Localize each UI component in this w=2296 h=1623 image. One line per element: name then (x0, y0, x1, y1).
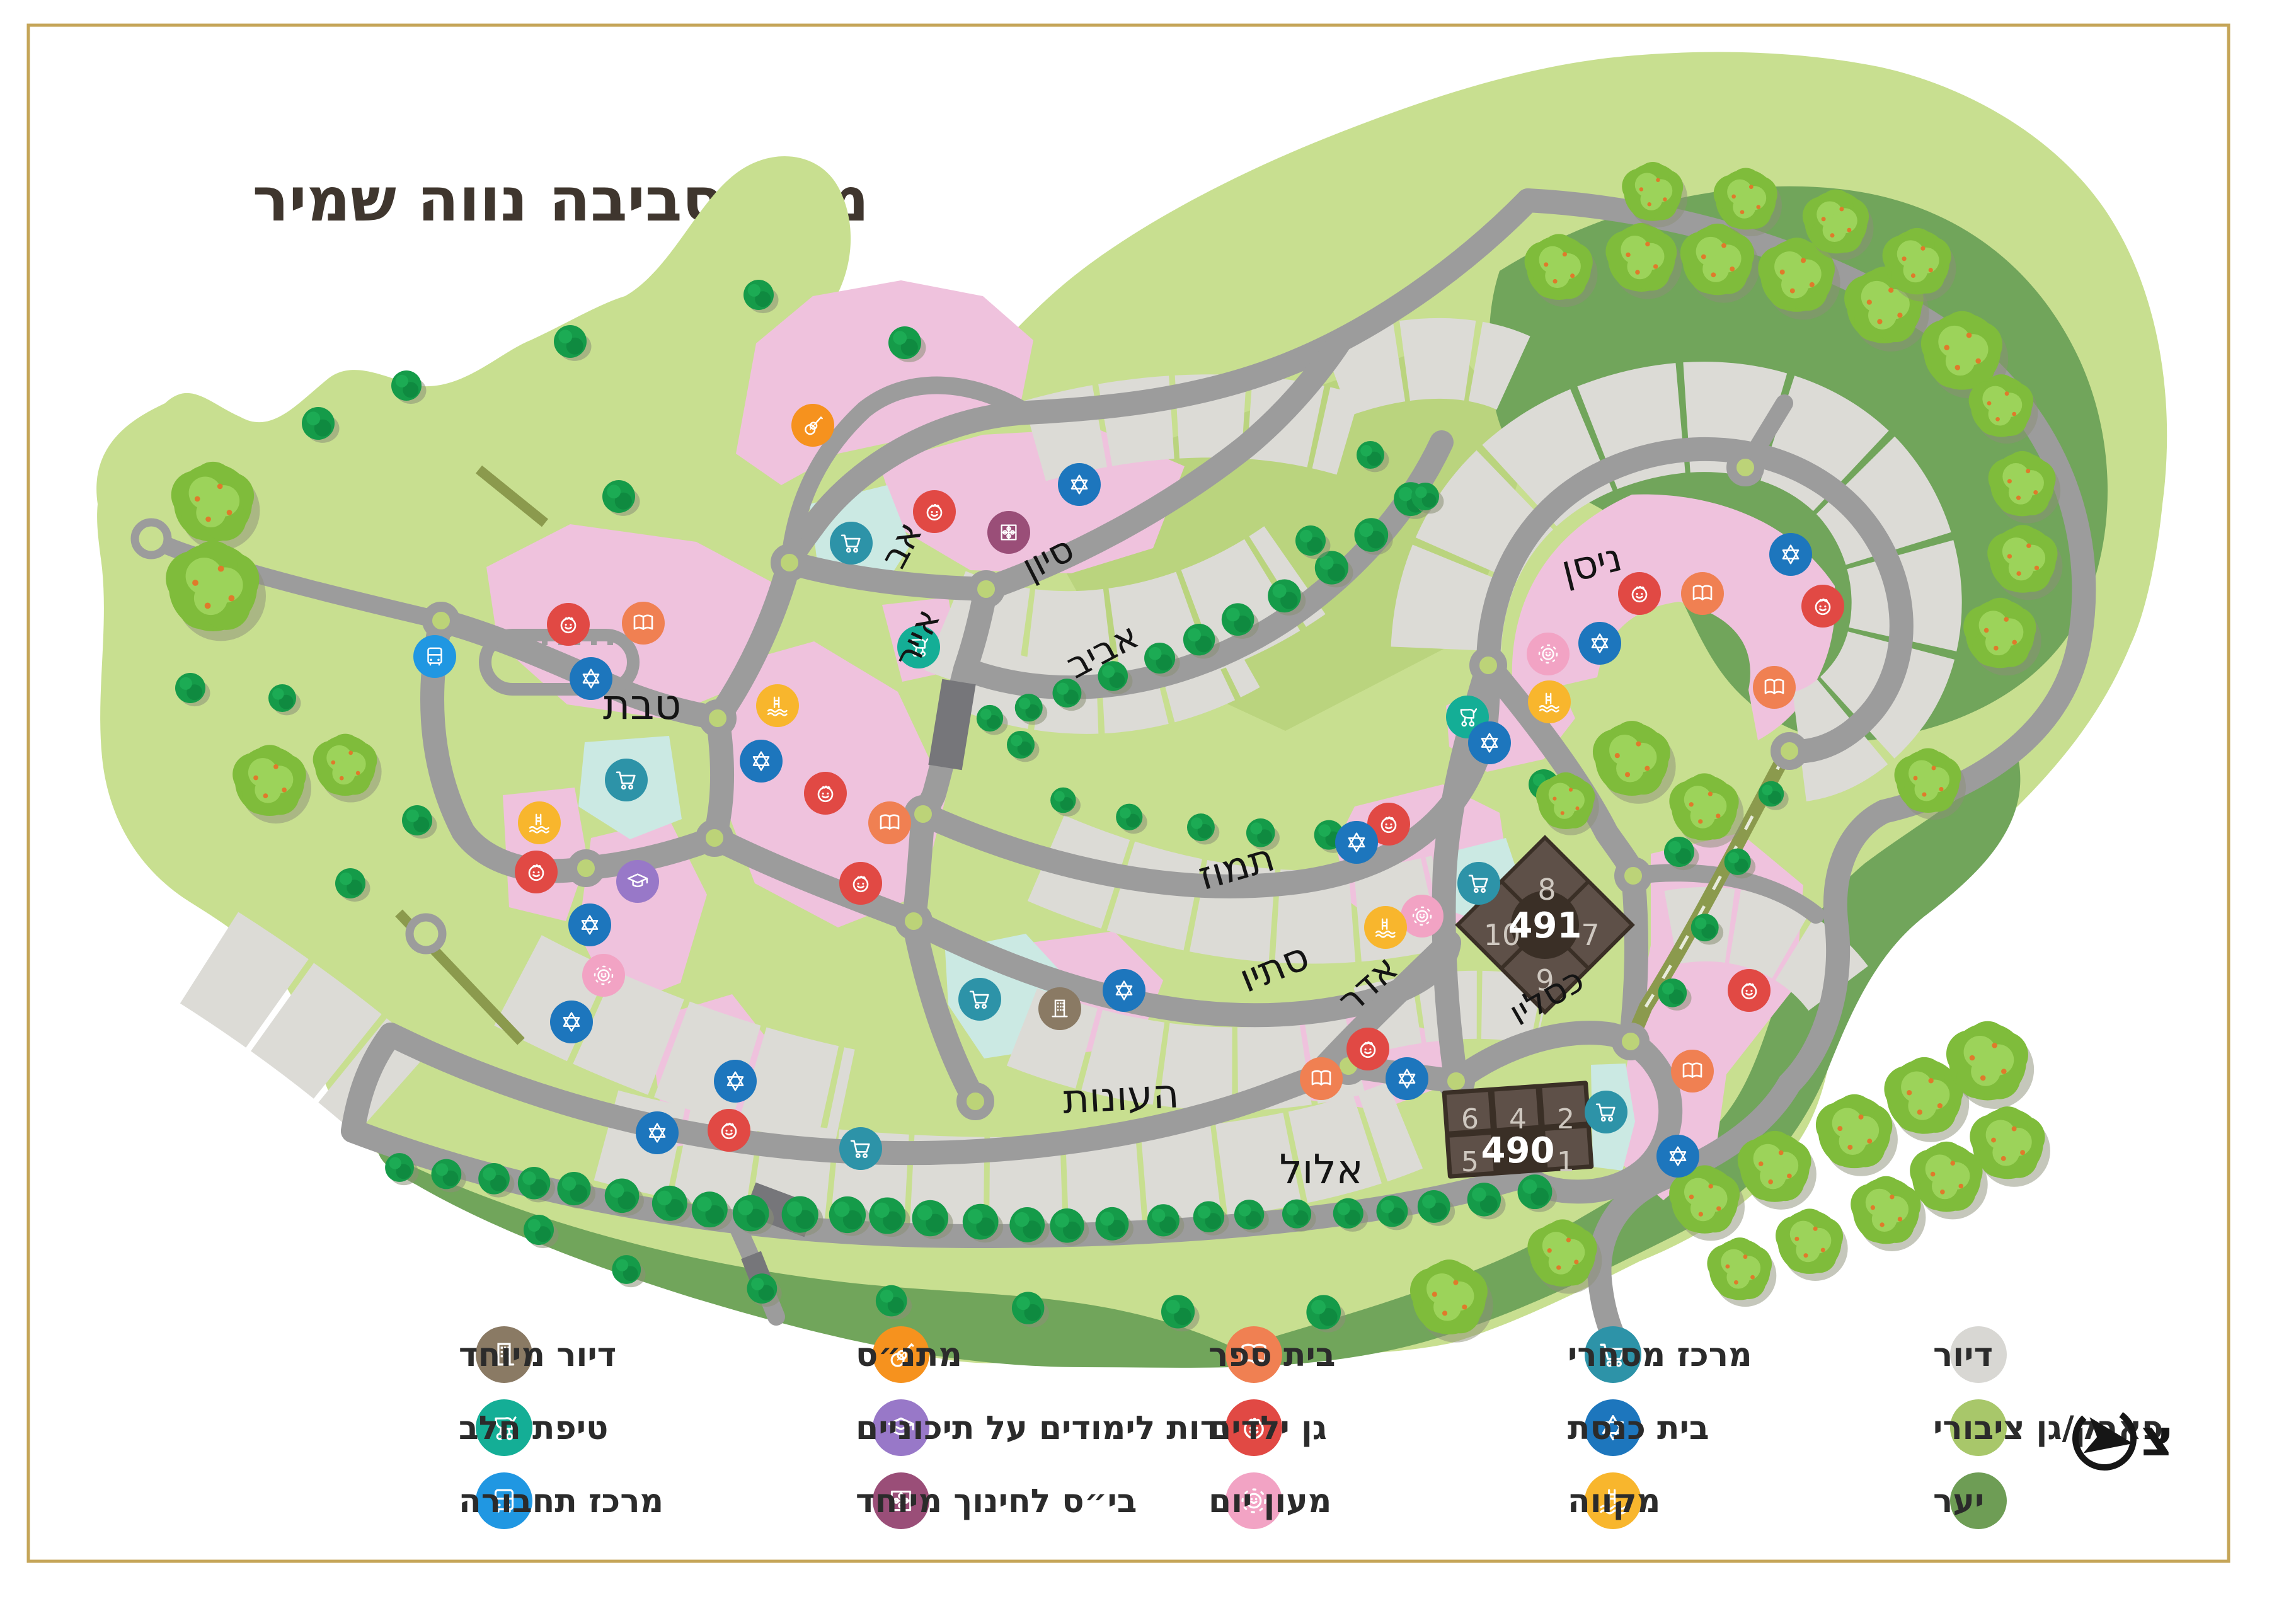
map-marker-commercial-center (1457, 862, 1500, 905)
map-marker-school (868, 801, 911, 844)
map-marker-kindergarten (1728, 969, 1771, 1012)
map-marker-community-center (791, 404, 834, 447)
map-marker-synagogue (550, 1001, 593, 1043)
map-marker-day-care (1527, 633, 1570, 675)
site-map: מפת סביבה נווה שמיר (0, 0, 2296, 1623)
street-label: אלול (1280, 1147, 1363, 1193)
roundabout (909, 800, 937, 828)
roundabout (776, 549, 803, 576)
roundabout (701, 824, 728, 852)
map-marker-school (1671, 1050, 1714, 1093)
map-marker-school (1681, 572, 1724, 615)
legend-label: מעון יום (1208, 1482, 1331, 1520)
map-marker-day-care (1401, 895, 1444, 938)
roundabout (972, 575, 1000, 603)
map-marker-synagogue (1058, 463, 1101, 506)
plot-490-cell: 6 (1461, 1103, 1479, 1135)
legend-label: טיפת חלב (459, 1409, 608, 1447)
map-marker-post-secondary (616, 860, 659, 903)
legend-label: דיור (1933, 1336, 1993, 1374)
plot-490-cell: 5 (1461, 1146, 1479, 1178)
map-marker-synagogue (1468, 721, 1511, 764)
map-marker-kindergarten (839, 862, 882, 905)
legend-label: מרכז תחבורה (459, 1482, 663, 1520)
map-marker-kindergarten (708, 1109, 750, 1152)
street-label: העונות (1062, 1070, 1180, 1123)
roundabout (1617, 1028, 1645, 1055)
plot-491-number: 491 (1508, 905, 1582, 946)
map-marker-school (1753, 666, 1796, 709)
map-marker-special-housing (1038, 987, 1081, 1030)
map-marker-synagogue (1335, 821, 1378, 864)
roundabout (1619, 862, 1647, 890)
north-label: צ (2141, 1409, 2174, 1467)
plot-490-number: 490 (1481, 1130, 1555, 1171)
roundabout (961, 1087, 989, 1115)
turnaround-ring (410, 917, 442, 950)
roundabout (427, 607, 455, 634)
map-marker-kindergarten (515, 851, 558, 893)
map-marker-synagogue (1578, 622, 1621, 665)
plot-491-cell: 7 (1581, 918, 1599, 952)
map-marker-commercial-center (839, 1127, 882, 1170)
map-marker-transport-center (413, 635, 456, 678)
roundabout (704, 704, 732, 732)
roundabout (1776, 737, 1803, 765)
map-marker-synagogue (1386, 1057, 1428, 1100)
map-marker-mikveh (756, 684, 799, 727)
legend-label: מקווה (1568, 1482, 1660, 1520)
map-marker-synagogue (1656, 1135, 1699, 1178)
legend-label: בית ספר (1208, 1336, 1336, 1374)
plot-490-cell: 1 (1557, 1146, 1575, 1178)
map-marker-synagogue (636, 1111, 679, 1154)
map-marker-kindergarten (1346, 1028, 1389, 1070)
map-marker-school (1300, 1057, 1343, 1100)
map-marker-kindergarten (1801, 585, 1844, 628)
legend-label: גן ילדים (1208, 1409, 1327, 1447)
map-marker-mikveh (1528, 680, 1571, 723)
map-marker-kindergarten (804, 772, 847, 815)
plot-490-cell: 2 (1557, 1103, 1575, 1135)
legend-label: מרכז מסחרי (1568, 1336, 1752, 1374)
legend-label: מתנ״ס (856, 1336, 962, 1374)
map-marker-school (622, 602, 665, 645)
roundabout (1731, 454, 1759, 481)
roundabout (900, 907, 927, 935)
map-marker-synagogue (568, 903, 611, 946)
legend-label: בית כנסת (1568, 1409, 1709, 1447)
legend-label: דיור מיוחד (459, 1336, 616, 1374)
map-marker-synagogue (714, 1060, 757, 1103)
map-marker-commercial-center (958, 978, 1001, 1021)
map-marker-kindergarten (913, 490, 956, 533)
roundabout (1474, 651, 1502, 679)
plot-491-cell: 8 (1537, 873, 1556, 907)
map-marker-synagogue (740, 740, 783, 783)
map-marker-commercial-center (830, 522, 873, 565)
map-marker-mikveh (1364, 906, 1407, 949)
turnaround-ring (135, 522, 168, 555)
map-marker-mikveh (518, 801, 561, 844)
map-marker-commercial-center (605, 759, 648, 801)
roundabout (572, 854, 600, 882)
map-marker-synagogue (1769, 533, 1812, 576)
street-label: טבת (603, 680, 681, 729)
map-marker-commercial-center (1585, 1091, 1627, 1133)
legend-label: בי״ס לחינוך מיוחד (856, 1482, 1137, 1520)
map-marker-kindergarten (547, 603, 590, 646)
legend-label: יער (1933, 1482, 1984, 1520)
map-poster: מפת סביבה נווה שמיר (0, 0, 2296, 1623)
map-marker-day-care (582, 954, 625, 997)
map-marker-synagogue (1103, 969, 1145, 1012)
